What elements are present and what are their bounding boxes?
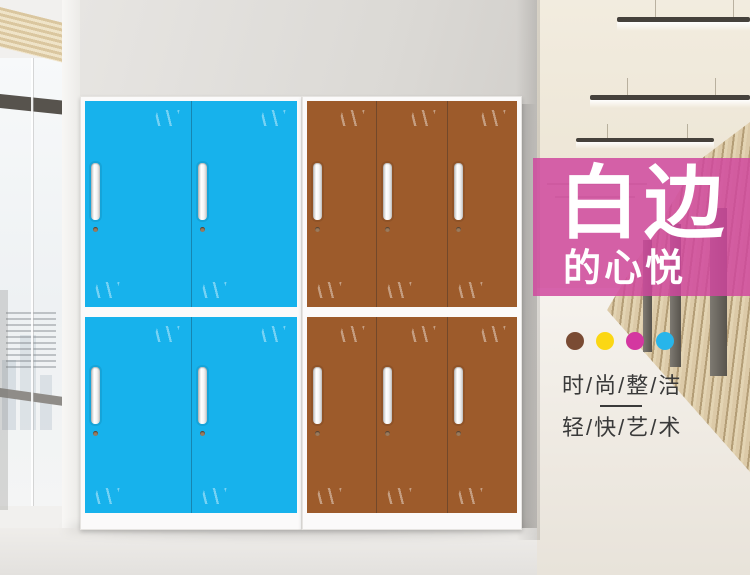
door-handle (91, 163, 100, 220)
locker-door-brown (447, 317, 517, 513)
color-palette (566, 332, 674, 350)
locker-door-blue (191, 101, 298, 307)
door-handle (313, 367, 322, 424)
feature-line-2: 轻/快/艺/术 (562, 414, 682, 441)
door-handle (454, 163, 463, 220)
keyhole (385, 431, 390, 436)
ceiling-light-glow (617, 22, 750, 31)
light-wire (733, 0, 734, 17)
color-dot-brown (566, 332, 584, 350)
feature-line-1: 时/尚/整/洁 (562, 372, 682, 399)
locker-door-blue (85, 317, 191, 513)
window-frame-pillar (62, 0, 80, 575)
keyhole (315, 227, 320, 232)
keyhole (456, 431, 461, 436)
keyhole (200, 227, 205, 232)
window-glass-divider (31, 58, 33, 506)
locker-door-brown (307, 317, 376, 513)
locker-door-brown (447, 101, 517, 307)
banner-subtitle: 的心悦 (563, 248, 686, 290)
keyhole (315, 431, 320, 436)
light-wire (627, 78, 628, 95)
locker-row (85, 317, 297, 513)
door-handle (198, 163, 207, 220)
door-handle (454, 367, 463, 424)
door-handle (383, 163, 392, 220)
keyhole (456, 227, 461, 232)
feature-slogan: 时/尚/整/洁 轻/快/艺/术 (562, 372, 682, 441)
product-scene: 白边 的心悦 时/尚/整/洁 轻/快/艺/术 (0, 0, 750, 575)
door-handle (91, 367, 100, 424)
brown-locker-cabinet (302, 96, 522, 530)
color-dot-magenta (626, 332, 644, 350)
light-wire (655, 0, 656, 17)
keyhole (93, 227, 98, 232)
window (0, 0, 62, 575)
keyhole (93, 431, 98, 436)
window-left-frame (0, 290, 8, 510)
color-dot-cyan (656, 332, 674, 350)
keyhole (200, 431, 205, 436)
locker-door-brown (376, 101, 446, 307)
door-handle (383, 367, 392, 424)
locker-row (307, 101, 517, 307)
color-dot-yellow (596, 332, 614, 350)
wood-slat-ceiling (0, 6, 68, 64)
door-handle (198, 367, 207, 424)
blue-locker-cabinet (80, 96, 302, 530)
locker-door-blue (85, 101, 191, 307)
keyhole (385, 227, 390, 232)
light-wire (715, 78, 716, 95)
promo-banner: 白边 的心悦 (533, 158, 750, 296)
locker-door-brown (307, 101, 376, 307)
banner-title: 白边 (559, 158, 729, 250)
door-handle (313, 163, 322, 220)
locker-row (85, 101, 297, 307)
locker-door-brown (376, 317, 446, 513)
ceiling-light-glow (590, 100, 750, 108)
ceiling-light-glow (576, 142, 714, 149)
light-wire (687, 124, 688, 138)
locker-door-blue (191, 317, 298, 513)
feature-divider (600, 405, 642, 407)
light-wire (607, 124, 608, 138)
locker-row (307, 317, 517, 513)
